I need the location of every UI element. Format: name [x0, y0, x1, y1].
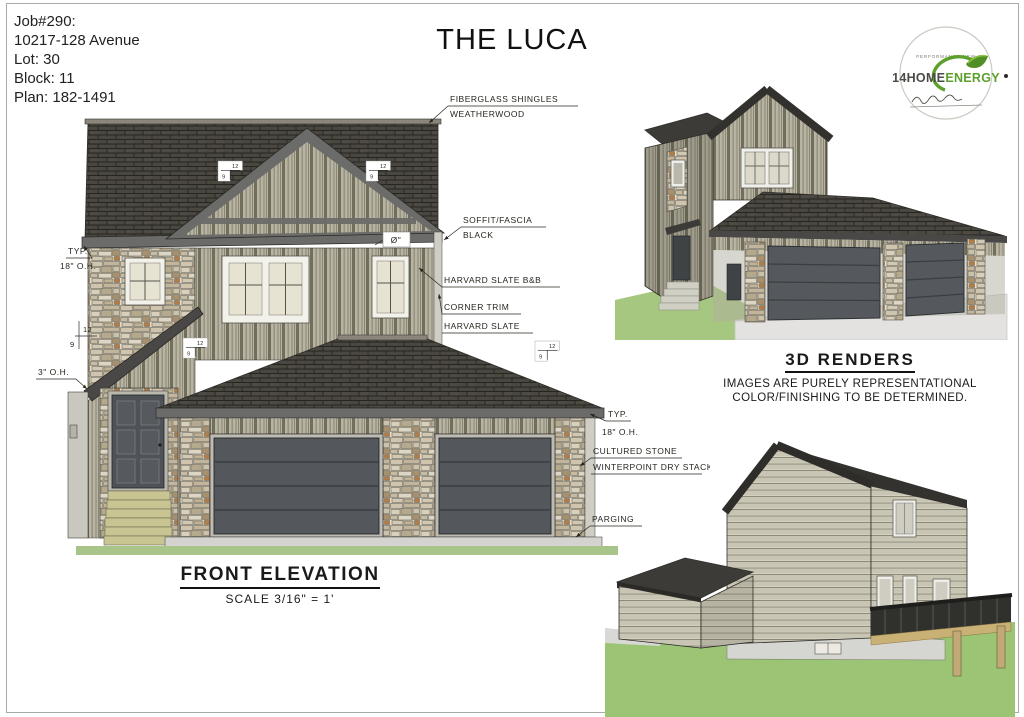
render1-stone-pillar-left: [745, 242, 765, 322]
svg-text:HARVARD SLATE: HARVARD SLATE: [444, 321, 520, 331]
render1-stone-pillar-right: [967, 239, 985, 314]
svg-text:9: 9: [222, 174, 225, 180]
garage-door-right: [435, 434, 555, 537]
svg-text:WINTERPOINT DRY STACK: WINTERPOINT DRY STACK: [593, 462, 710, 472]
side-return-wall: [68, 392, 88, 538]
svg-text:PARGING: PARGING: [592, 514, 634, 524]
renders-note-line1: IMAGES ARE PURELY REPRESENTATIONAL: [650, 377, 1024, 391]
window-upper-left: [125, 258, 165, 305]
window-upper-right: [372, 256, 409, 318]
front-elevation-title: FRONT ELEVATION: [180, 564, 379, 589]
svg-text:18" O.H.: 18" O.H.: [602, 427, 638, 437]
front-elevation-drawing: Ø": [30, 85, 710, 575]
svg-text:18" O.H.: 18" O.H.: [60, 261, 96, 271]
door-knob: [158, 443, 161, 446]
garage-stone-right: [555, 418, 585, 537]
page-title: THE LUCA: [362, 24, 662, 57]
job-number: Job#290:: [14, 12, 140, 31]
render2-deck-post-2: [997, 626, 1005, 668]
svg-text:WEATHERWOOD: WEATHERWOOD: [450, 109, 525, 119]
annotation-soffit: SOFFIT/FASCIA BLACK: [444, 215, 546, 240]
garage-stone-left: [180, 418, 210, 537]
svg-text:BLACK: BLACK: [463, 230, 493, 240]
renders-note-line2: COLOR/FINISHING TO BE DETERMINED.: [650, 391, 1024, 405]
job-address: 10217-128 Avenue: [14, 31, 140, 50]
ridge-cap: [85, 119, 441, 124]
drawing-sheet: Job#290: 10217-128 Avenue Lot: 30 Block:…: [0, 0, 1024, 717]
garage-band-left: [210, 418, 383, 434]
garage-door-left: [210, 434, 383, 537]
gable-trim-band: [198, 218, 416, 224]
annotation-shingles: FIBERGLASS SHINGLES WEATHERWOOD: [429, 94, 578, 123]
svg-text:3" O.H.: 3" O.H.: [38, 367, 69, 377]
annotation-stone: CULTURED STONE WINTERPOINT DRY STACK: [580, 446, 710, 474]
render1-garage: [709, 192, 1007, 322]
svg-text:SOFFIT/FASCIA: SOFFIT/FASCIA: [463, 215, 532, 225]
front-elevation-scale: SCALE 3/16" = 1': [140, 592, 420, 606]
svg-text:FIBERGLASS SHINGLES: FIBERGLASS SHINGLES: [450, 94, 558, 104]
svg-text:9: 9: [370, 174, 373, 180]
grass-line: [76, 546, 618, 555]
garage-band-right: [435, 418, 555, 434]
svg-text:12: 12: [380, 164, 386, 170]
annotation-oh-entry: 3" O.H.: [36, 367, 87, 389]
renders-title: 3D RENDERS: [785, 350, 915, 373]
pitch-marker-garage-right: 12 9: [535, 341, 559, 361]
front-elevation-caption: FRONT ELEVATION SCALE 3/16" = 1': [140, 564, 420, 606]
job-lot: Lot: 30: [14, 50, 140, 69]
utility-meter: [70, 425, 77, 438]
svg-text:12: 12: [83, 325, 92, 334]
svg-text:HARVARD SLATE B&B: HARVARD SLATE B&B: [444, 275, 541, 285]
svg-text:CULTURED STONE: CULTURED STONE: [593, 446, 677, 456]
render1-garage-roof: [711, 192, 1005, 236]
renders-caption: 3D RENDERS IMAGES ARE PURELY REPRESENTAT…: [650, 350, 1024, 405]
render1-front-gable: [709, 89, 831, 200]
corner-trim-right: [434, 232, 442, 360]
svg-text:12: 12: [232, 164, 238, 170]
svg-text:Ø": Ø": [391, 235, 402, 245]
svg-text:TYP.: TYP.: [608, 409, 628, 419]
renders-note: IMAGES ARE PURELY REPRESENTATIONAL COLOR…: [650, 377, 1024, 405]
entry-door: [108, 391, 168, 491]
window-upper-center: [222, 256, 309, 323]
svg-text:9: 9: [187, 351, 190, 357]
garage-fascia: [156, 408, 604, 418]
entry-steps: [104, 491, 172, 545]
annotation-corner-trim: CORNER TRIM HARVARD SLATE: [439, 294, 533, 333]
render1-man-door: [727, 264, 741, 300]
parging-foundation: [165, 537, 602, 547]
svg-text:CORNER TRIM: CORNER TRIM: [444, 302, 509, 312]
svg-text:12: 12: [197, 341, 203, 347]
render2-deck-post-1: [953, 631, 961, 676]
svg-text:12: 12: [549, 344, 555, 350]
garage-ridge-cap: [338, 335, 427, 340]
svg-text:9: 9: [70, 340, 74, 349]
svg-text:9: 9: [539, 354, 542, 360]
garage-stone-mid: [383, 418, 435, 537]
render1-stone-pillar-mid: [883, 243, 903, 320]
